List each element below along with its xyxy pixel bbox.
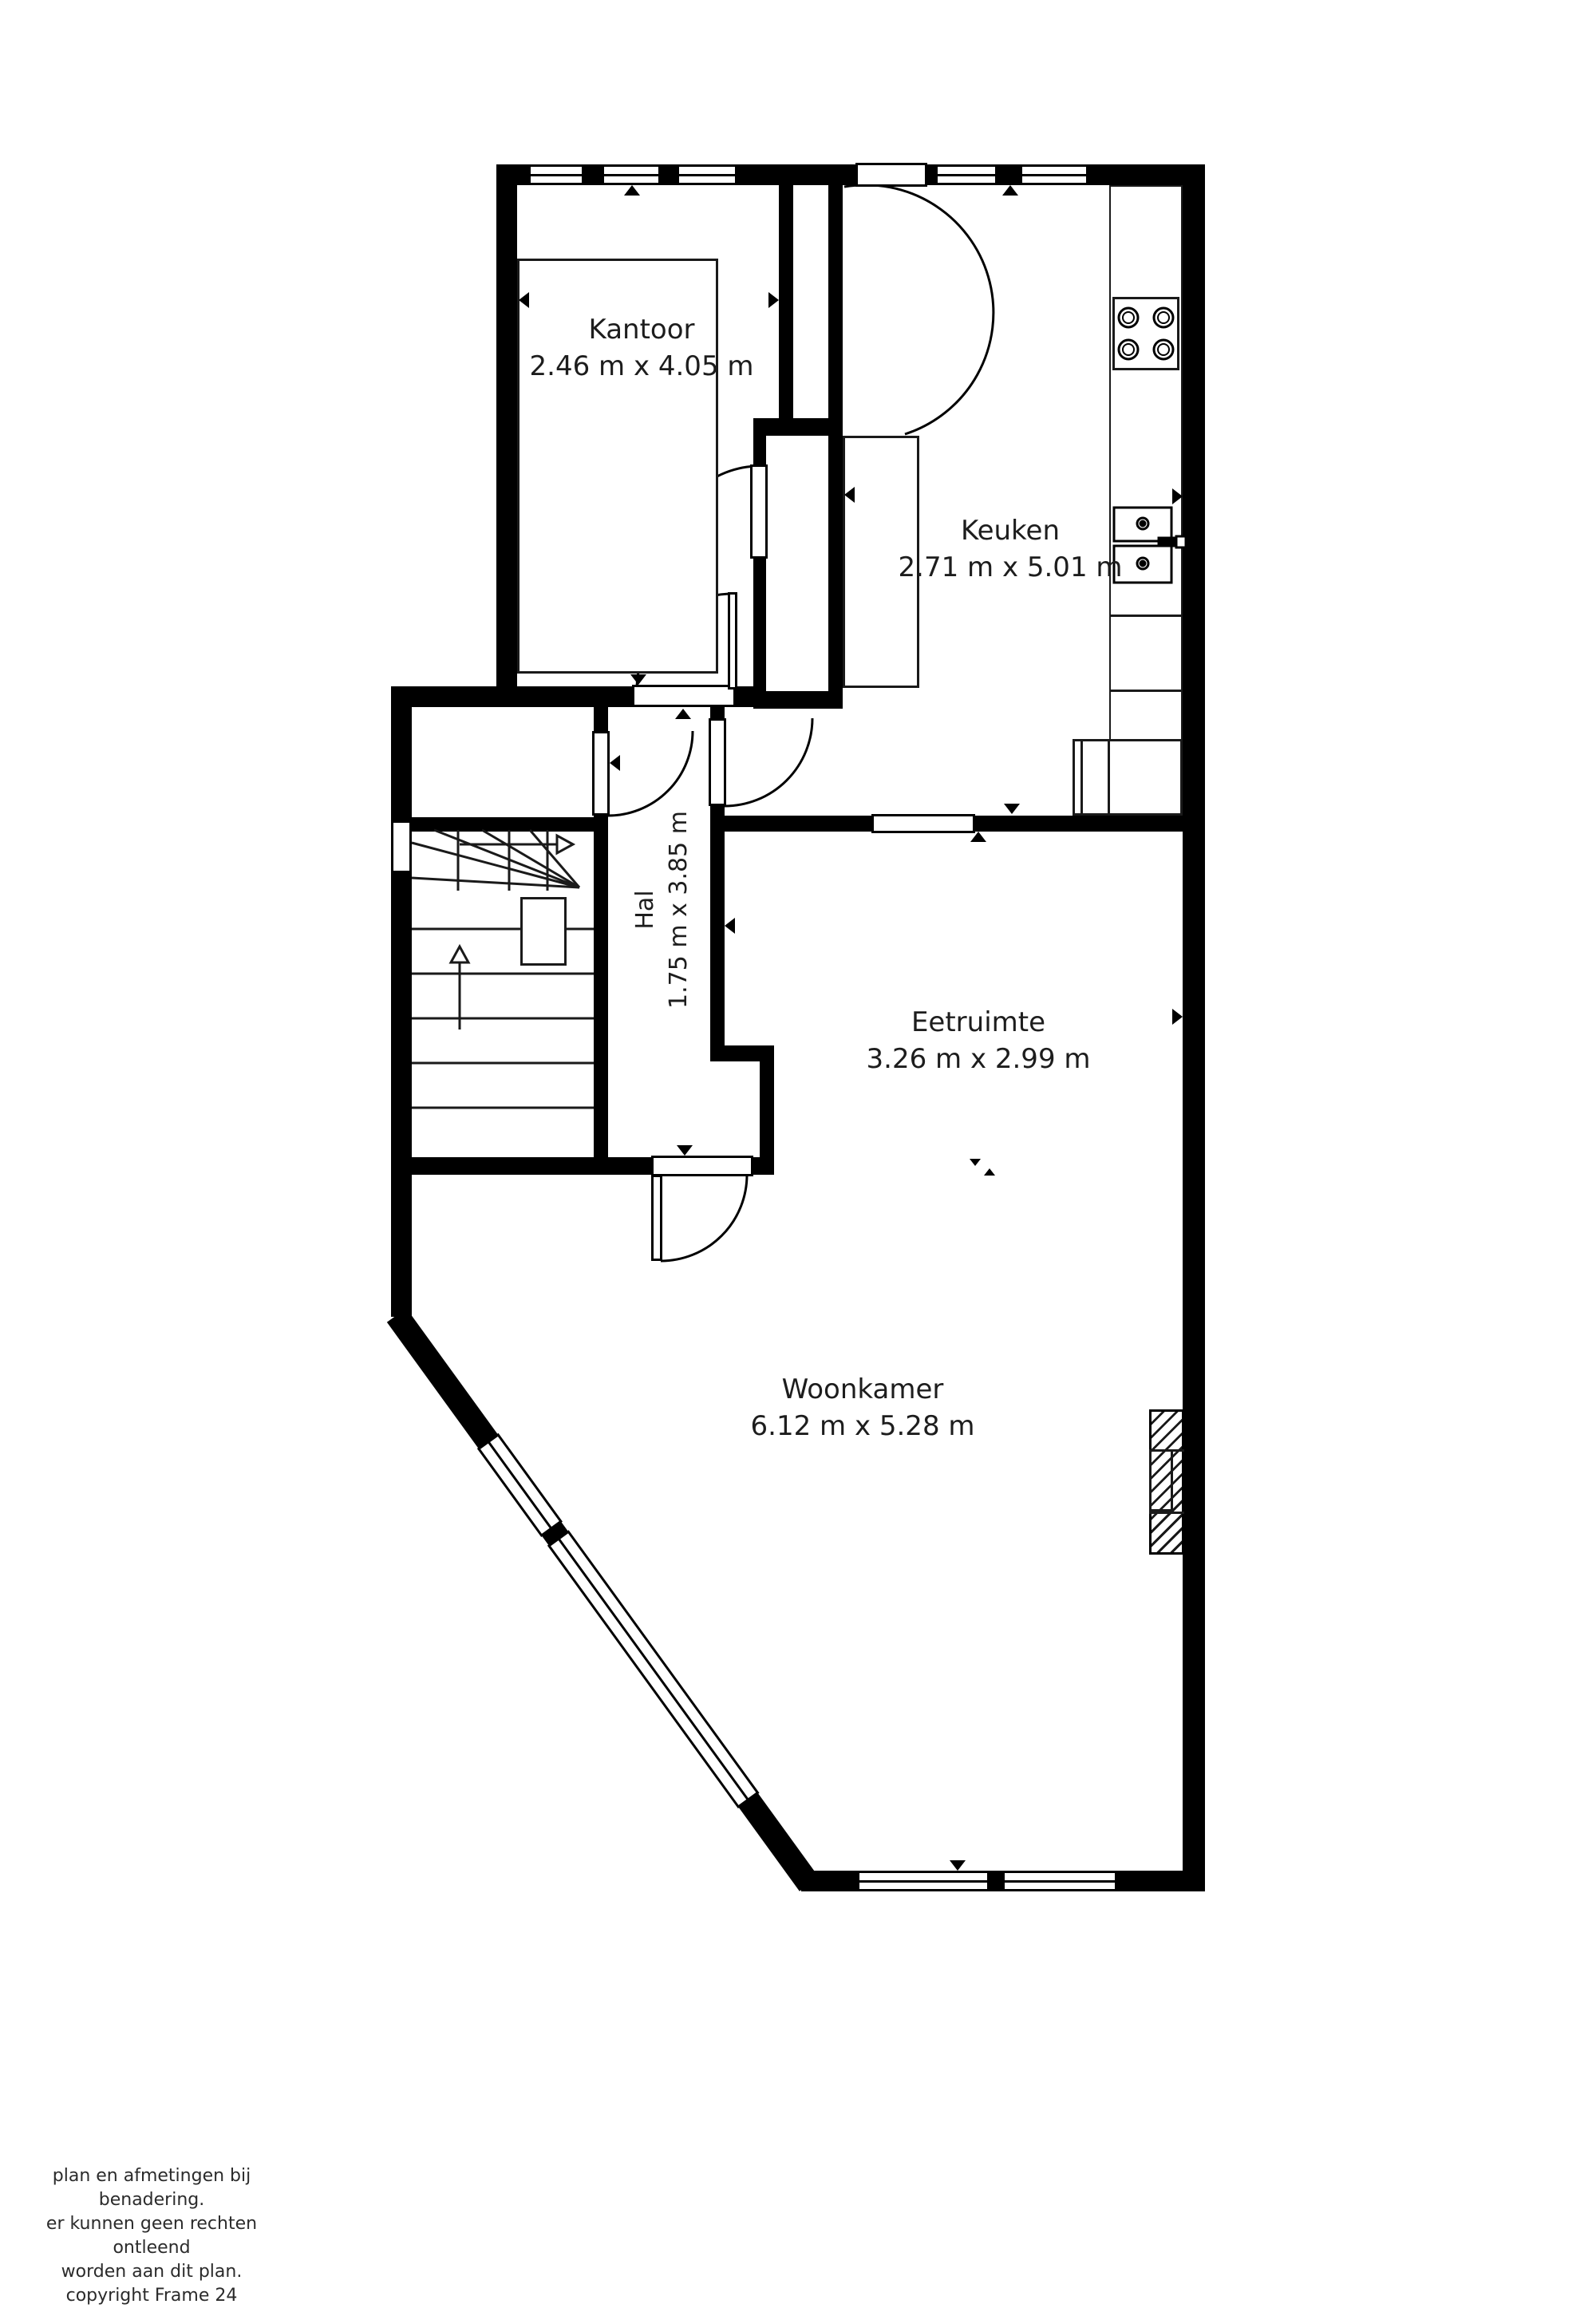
- room-dimensions: 3.26 m x 2.99 m: [819, 1041, 1138, 1077]
- window-pane: [679, 174, 735, 176]
- door-arc-hal-eetruimte: [725, 718, 812, 806]
- room-dimensions: 6.12 m x 5.28 m: [703, 1408, 1022, 1444]
- marker-triangle-up: [1002, 185, 1018, 196]
- counter-divider: [1109, 615, 1183, 617]
- room-label-kantoor: Kantoor 2.46 m x 4.05 m: [482, 311, 801, 385]
- appliance-divider: [1080, 739, 1083, 816]
- window: [677, 164, 737, 185]
- disclaimer-line: worden aan dit plan.: [6, 2260, 297, 2284]
- copyright-disclaimer: plan en afmetingen bij benadering. er ku…: [6, 2164, 297, 2308]
- room-dimensions: 2.46 m x 4.05 m: [482, 348, 801, 385]
- window-pane: [604, 174, 658, 176]
- door-recess-keuken-entrance: [855, 163, 927, 187]
- door-recess-hal-eetruimte: [709, 718, 726, 806]
- room-name: Kantoor: [482, 311, 801, 348]
- marker-triangle-up: [970, 832, 986, 842]
- door-recess-closet: [750, 464, 768, 559]
- window: [391, 820, 412, 873]
- marker-triangle-left: [844, 487, 855, 503]
- radiator-divider: [1149, 1512, 1184, 1514]
- room-dimensions: 2.71 m x 5.01 m: [851, 549, 1170, 586]
- window-pane: [938, 174, 995, 176]
- room-dimensions: 1.75 m x 3.85 m: [662, 790, 696, 1030]
- marker-triangle-right: [1172, 488, 1183, 504]
- disclaimer-line: plan en afmetingen bij benadering.: [6, 2164, 297, 2212]
- window: [528, 164, 584, 185]
- marker-triangle-up: [984, 1168, 995, 1176]
- window-pane: [1022, 174, 1086, 176]
- stair-table: [520, 897, 567, 966]
- door-recess-kantoor-hal: [632, 685, 736, 707]
- floorplan-page: { "title": "Begane grond plattegrond", "…: [0, 0, 1596, 2263]
- marker-triangle-left: [610, 755, 620, 771]
- window: [602, 164, 661, 185]
- room-label-hal: Hal 1.75 m x 3.85 m: [629, 790, 709, 1030]
- window-pane: [859, 1880, 987, 1883]
- room-name: Woonkamer: [703, 1371, 1022, 1408]
- room-name: Hal: [629, 790, 662, 1030]
- marker-triangle-down: [1004, 804, 1020, 814]
- room-label-keuken: Keuken 2.71 m x 5.01 m: [851, 512, 1170, 586]
- passage-keuken-eetruimte: [871, 814, 975, 833]
- marker-triangle-down: [950, 1860, 966, 1871]
- marker-triangle-up: [624, 185, 640, 196]
- appliance: [1073, 739, 1183, 816]
- marker-triangle-left: [519, 292, 529, 308]
- marker-triangle-down: [630, 674, 646, 685]
- marker-triangle-down: [970, 1159, 981, 1166]
- door-recess-storage-hal: [592, 731, 610, 816]
- stove-icon: [1112, 297, 1179, 370]
- disclaimer-line: er kunnen geen rechten ontleend: [6, 2212, 297, 2260]
- marker-triangle-right: [1172, 1009, 1183, 1025]
- window: [1020, 164, 1088, 185]
- room-label-eetruimte: Eetruimte 3.26 m x 2.99 m: [819, 1004, 1138, 1077]
- door-leaf-kantoor-hal: [728, 592, 737, 690]
- radiator-inner: [1149, 1449, 1173, 1512]
- window-pane: [1005, 1880, 1115, 1883]
- marker-triangle-down: [677, 1145, 693, 1156]
- door-leaf-hal-woonkamer: [651, 1175, 662, 1261]
- room-name: Eetruimte: [819, 1004, 1138, 1041]
- room-name: Keuken: [851, 512, 1170, 549]
- marker-triangle-up: [675, 709, 691, 719]
- counter-divider: [1109, 690, 1183, 692]
- door-arc-keuken-entrance: [844, 185, 994, 434]
- window: [935, 164, 997, 185]
- window-pane: [531, 174, 582, 176]
- door-recess-hal-woonkamer: [651, 1156, 753, 1176]
- marker-triangle-right: [768, 292, 779, 308]
- door-arc-hal-woonkamer: [661, 1175, 747, 1261]
- appliance-divider: [1108, 739, 1110, 816]
- window: [1002, 1871, 1117, 1891]
- window: [857, 1871, 990, 1891]
- room-label-woonkamer: Woonkamer 6.12 m x 5.28 m: [703, 1371, 1022, 1444]
- marker-triangle-left: [725, 918, 735, 934]
- stairs-icon: [412, 830, 594, 1108]
- disclaimer-line: copyright Frame 24: [6, 2284, 297, 2308]
